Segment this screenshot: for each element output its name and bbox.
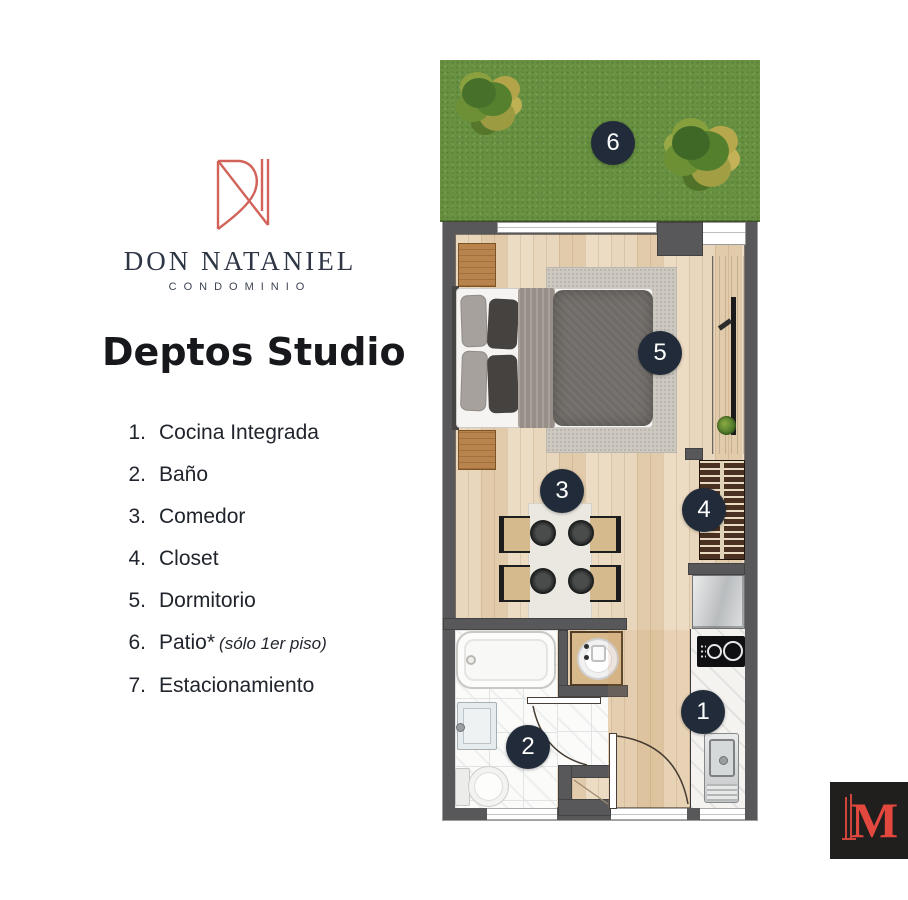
legend-item-4: 4.Closet bbox=[120, 547, 327, 570]
throw-blanket bbox=[518, 288, 555, 428]
burner bbox=[707, 644, 722, 659]
faucet bbox=[719, 756, 728, 765]
brand-block: DON NATANIEL CONDOMINIO bbox=[95, 150, 385, 293]
kitchen-sink bbox=[704, 733, 739, 803]
watermark-logo: M bbox=[830, 782, 908, 859]
wall-stub bbox=[688, 563, 745, 575]
marker-comedor: 3 bbox=[540, 469, 584, 513]
floor-plan: 6 5 bbox=[440, 60, 760, 825]
marker-bano: 2 bbox=[506, 725, 550, 769]
chair bbox=[499, 565, 530, 602]
legend-item-5: 5.Dormitorio bbox=[120, 589, 327, 612]
place-setting bbox=[568, 520, 594, 546]
entry-door bbox=[609, 733, 617, 809]
toilet bbox=[468, 766, 509, 807]
nightstand bbox=[458, 243, 496, 287]
brand-name: DON NATANIEL bbox=[95, 246, 385, 277]
marker-patio: 6 bbox=[591, 121, 635, 165]
cooktop bbox=[697, 636, 745, 667]
laundry-wall bbox=[558, 630, 568, 687]
pillow bbox=[487, 354, 519, 413]
dn-monogram-icon bbox=[194, 150, 286, 238]
bathroom-wall bbox=[443, 618, 627, 630]
legend-note: (sólo 1er piso) bbox=[219, 632, 327, 655]
bathroom-bottom-window bbox=[487, 808, 557, 820]
page-title: Deptos Studio bbox=[102, 330, 406, 374]
apartment: 5 3 4 bbox=[443, 222, 757, 820]
marker-dormitorio: 5 bbox=[638, 331, 682, 375]
bathroom-door bbox=[527, 697, 601, 704]
wall-stub bbox=[685, 448, 703, 460]
plant bbox=[717, 416, 736, 435]
brand-subtitle: CONDOMINIO bbox=[95, 281, 385, 293]
wall-step bbox=[657, 222, 703, 256]
entry-threshold bbox=[611, 808, 687, 820]
patio-grass: 6 bbox=[440, 60, 760, 222]
fridge bbox=[692, 575, 745, 629]
cooktop-controls bbox=[700, 644, 706, 658]
bed bbox=[456, 288, 653, 428]
legend-item-2: 2.Baño bbox=[120, 463, 327, 486]
nightstand bbox=[458, 430, 496, 470]
legend-item-7: 7.Estacionamiento bbox=[120, 674, 327, 697]
marker-cocina: 1 bbox=[681, 690, 725, 734]
bathroom-sink bbox=[457, 702, 497, 750]
sink-basin bbox=[463, 708, 491, 744]
entry-floor-tint bbox=[608, 630, 690, 808]
washer-door bbox=[591, 645, 606, 662]
chair bbox=[590, 516, 621, 553]
chair bbox=[590, 565, 621, 602]
kitchen-bottom-window bbox=[700, 808, 745, 820]
place-setting bbox=[530, 568, 556, 594]
tree-icon bbox=[462, 78, 496, 108]
entry-niche-wall bbox=[558, 799, 611, 816]
vestibule-floor bbox=[557, 697, 608, 769]
marker-closet: 4 bbox=[682, 488, 726, 532]
legend-item-6: 6.Patio*(sólo 1er piso) bbox=[120, 631, 327, 655]
legend-list: 1.Cocina Integrada 2.Baño 3.Comedor 4.Cl… bbox=[120, 421, 327, 716]
legend-item-1: 1.Cocina Integrada bbox=[120, 421, 327, 444]
flyer-page: DON NATANIEL CONDOMINIO Deptos Studio 1.… bbox=[0, 0, 908, 900]
bedroom-window bbox=[497, 222, 657, 233]
legend-item-3: 3.Comedor bbox=[120, 505, 327, 528]
tv bbox=[731, 297, 736, 435]
tree-icon bbox=[672, 126, 710, 160]
burner bbox=[723, 641, 743, 661]
corner-window bbox=[702, 222, 746, 245]
washer-knob bbox=[584, 644, 589, 649]
bathtub bbox=[456, 631, 556, 689]
pillow bbox=[460, 295, 488, 348]
place-setting bbox=[530, 520, 556, 546]
drainboard bbox=[707, 784, 737, 801]
washer-knob bbox=[584, 655, 589, 660]
faucet bbox=[456, 723, 465, 732]
place-setting bbox=[568, 568, 594, 594]
watermark-letter: M bbox=[851, 788, 898, 852]
tub-drain bbox=[466, 655, 476, 665]
pillow bbox=[487, 298, 520, 350]
tub-basin bbox=[464, 639, 548, 681]
pillow bbox=[460, 351, 488, 412]
watermark-crane-line bbox=[845, 797, 847, 839]
chair bbox=[499, 516, 530, 553]
